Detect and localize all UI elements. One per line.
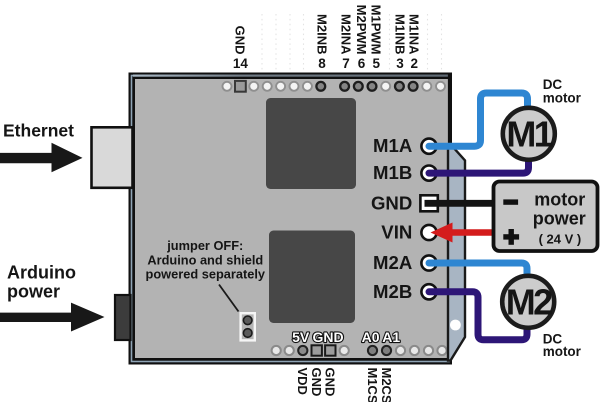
svg-text:7: 7 bbox=[342, 56, 350, 71]
svg-text:A1: A1 bbox=[382, 329, 400, 345]
svg-text:GND: GND bbox=[309, 368, 324, 397]
svg-text:14: 14 bbox=[233, 56, 249, 71]
svg-text:M1PWM: M1PWM bbox=[369, 5, 384, 55]
svg-text:VDD: VDD bbox=[295, 368, 310, 395]
svg-text:M1INA: M1INA bbox=[407, 14, 422, 55]
svg-text:( 24 V ): ( 24 V ) bbox=[539, 232, 582, 247]
svg-text:M2B: M2B bbox=[373, 281, 412, 302]
svg-text:GND: GND bbox=[313, 329, 344, 345]
svg-text:A0: A0 bbox=[362, 329, 380, 345]
svg-text:GND: GND bbox=[323, 368, 338, 397]
svg-text:M1INB: M1INB bbox=[392, 14, 407, 54]
svg-text:5V: 5V bbox=[292, 329, 310, 345]
svg-text:powered separately: powered separately bbox=[146, 266, 266, 281]
svg-text:M2CS: M2CS bbox=[379, 368, 394, 402]
svg-text:M1B: M1B bbox=[373, 162, 412, 183]
svg-text:Ethernet: Ethernet bbox=[3, 121, 74, 141]
svg-text:VIN: VIN bbox=[381, 222, 412, 243]
svg-text:power: power bbox=[533, 209, 586, 229]
svg-text:jumper OFF:: jumper OFF: bbox=[166, 238, 243, 253]
svg-text:GND: GND bbox=[233, 26, 248, 55]
svg-text:M2PWM: M2PWM bbox=[354, 5, 369, 55]
svg-text:M1A: M1A bbox=[373, 135, 412, 156]
svg-text:5: 5 bbox=[373, 56, 381, 71]
svg-text:M2INB: M2INB bbox=[314, 14, 329, 54]
svg-text:M2A: M2A bbox=[373, 252, 412, 273]
svg-text:3: 3 bbox=[396, 56, 404, 71]
svg-text:M1: M1 bbox=[506, 113, 553, 154]
svg-text:motor: motor bbox=[534, 190, 585, 210]
svg-text:GND: GND bbox=[371, 192, 412, 213]
svg-text:motor: motor bbox=[543, 90, 582, 105]
svg-text:M2INA: M2INA bbox=[338, 14, 353, 55]
svg-text:M1CS: M1CS bbox=[365, 368, 380, 402]
svg-text:8: 8 bbox=[318, 56, 326, 71]
svg-text:Arduino and shield: Arduino and shield bbox=[147, 252, 263, 267]
svg-text:6: 6 bbox=[358, 56, 366, 71]
svg-text:motor: motor bbox=[543, 344, 582, 359]
svg-text:Arduino: Arduino bbox=[7, 263, 76, 283]
svg-text:2: 2 bbox=[411, 56, 419, 71]
svg-text:M2: M2 bbox=[506, 281, 552, 322]
svg-text:power: power bbox=[7, 281, 60, 301]
